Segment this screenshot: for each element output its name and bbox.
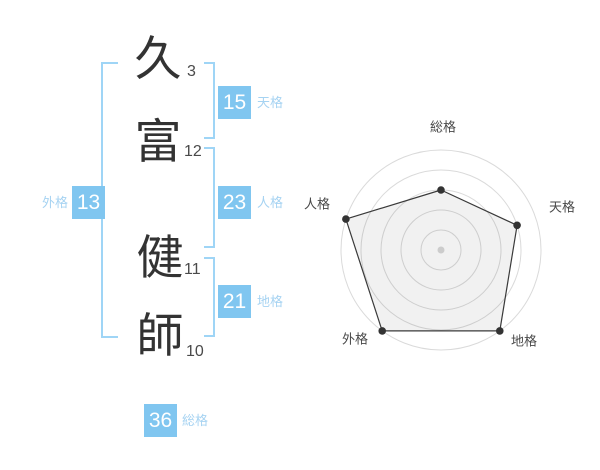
soukaku-label: 総格 [182,414,208,427]
stroke-count-3: 11 [184,262,201,278]
stroke-count-1: 3 [187,64,196,80]
chikaku-bracket [204,257,215,337]
radar-axis-label: 地格 [511,334,537,349]
jinkaku-bracket [204,147,215,248]
gaikaku-value-badge: 13 [72,186,105,219]
name-character-3: 健 [136,234,184,281]
name-character-1: 久 [134,35,182,82]
radar-vertex-dot [342,215,350,223]
jinkaku-value-badge: 23 [218,186,251,219]
tenkaku-value-badge: 15 [218,86,251,119]
name-character-2: 富 [134,118,182,165]
radar-axis-label: 外格 [342,332,368,347]
radar-vertex-dot [378,327,386,335]
tenkaku-label: 天格 [257,96,283,109]
stroke-count-4: 10 [186,344,204,360]
name-character-4: 師 [136,312,184,359]
radar-vertex-dot [437,186,445,194]
radar-axis-label: 天格 [549,200,575,215]
radar-center-dot [438,247,445,254]
tenkaku-bracket [204,62,215,139]
seimei-handan-page: 久 3 富 12 健 11 師 10 15 天格 23 人格 21 地格 外格 … [0,0,600,470]
gaikaku-label: 外格 [40,196,68,209]
chikaku-value-badge: 21 [218,285,251,318]
radar-vertex-dot [513,221,521,229]
jinkaku-label: 人格 [257,196,283,209]
radar-series-polygon [346,190,517,331]
radar-axis-label: 総格 [430,120,456,135]
soukaku-value-badge: 36 [144,404,177,437]
radar-vertex-dot [496,327,504,335]
stroke-count-2: 12 [184,144,202,160]
chikaku-label: 地格 [257,295,283,308]
radar-axis-label: 人格 [304,197,330,212]
radar-chart: 総格天格地格外格人格 [290,105,600,395]
